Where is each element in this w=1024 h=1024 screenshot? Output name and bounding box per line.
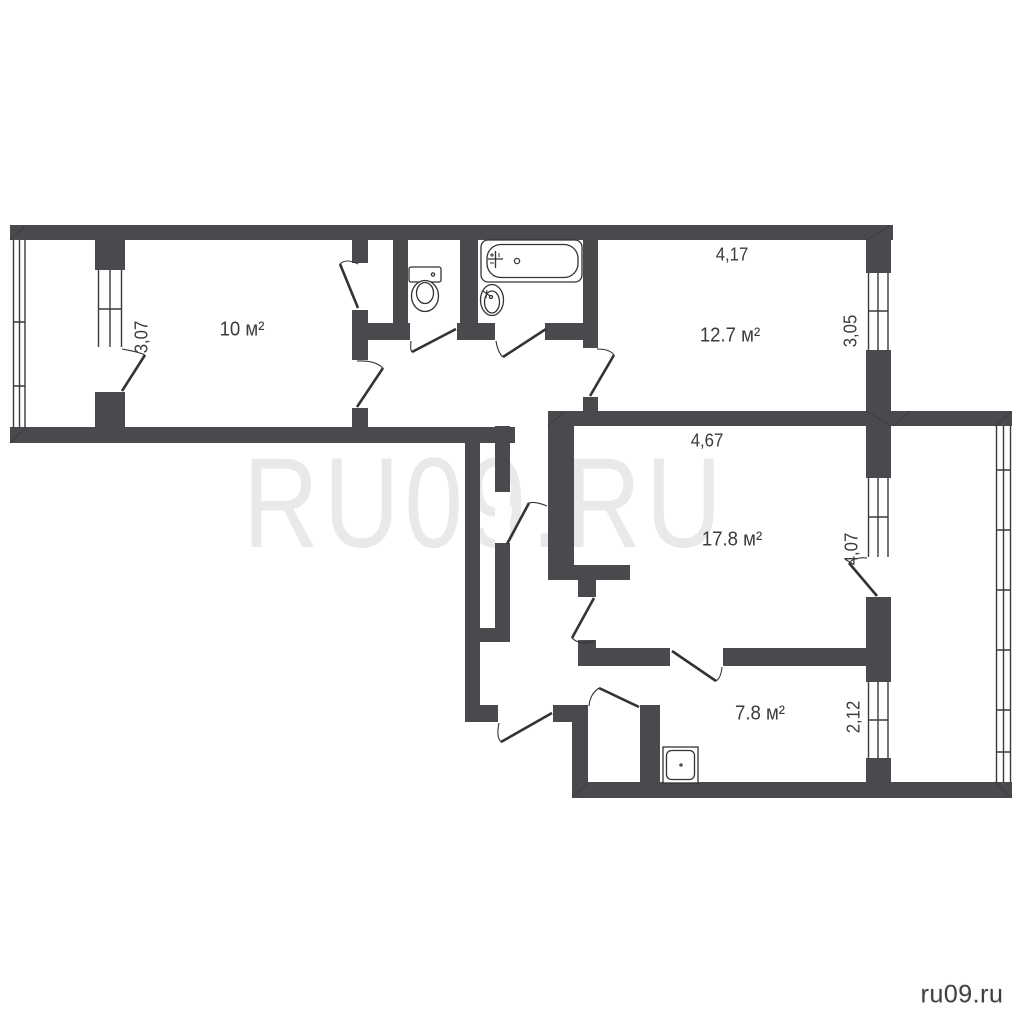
room10-area-label: 10 м² [220, 319, 265, 342]
floor-plan: RU09.RU [0, 0, 1024, 1024]
door-pantry [599, 688, 639, 707]
bedroom-side-dim: 3,05 [841, 315, 862, 348]
door-room10-balcony [122, 355, 145, 391]
wall-openings [95, 263, 891, 758]
room10-side-dim: 3,07 [132, 321, 153, 354]
door-hall [572, 598, 594, 638]
kitchen-sink-icon [663, 747, 698, 783]
fixtures [409, 240, 698, 783]
hall-side-dim: 4,07 [842, 533, 863, 566]
bedroom-top-dim: 4,17 [716, 245, 749, 266]
hall-area-label: 17.8 м² [702, 529, 762, 552]
door-entrance [501, 713, 552, 742]
hall-top-dim: 4,67 [691, 431, 724, 452]
bedroom-area-label: 12.7 м² [700, 325, 760, 348]
kitchen-area-label: 7.8 м² [735, 703, 785, 726]
door-closet [507, 503, 529, 544]
toilet-icon [409, 267, 441, 312]
kitchen-side-dim: 2,12 [844, 701, 865, 734]
window-left-balcony [14, 240, 26, 428]
plan-linework [0, 0, 1024, 1024]
site-label: ru09.ru [921, 981, 1004, 1010]
bathroom-sink-icon [481, 285, 504, 316]
bathtub-icon [481, 240, 582, 282]
window-right-balcony [997, 426, 1011, 782]
